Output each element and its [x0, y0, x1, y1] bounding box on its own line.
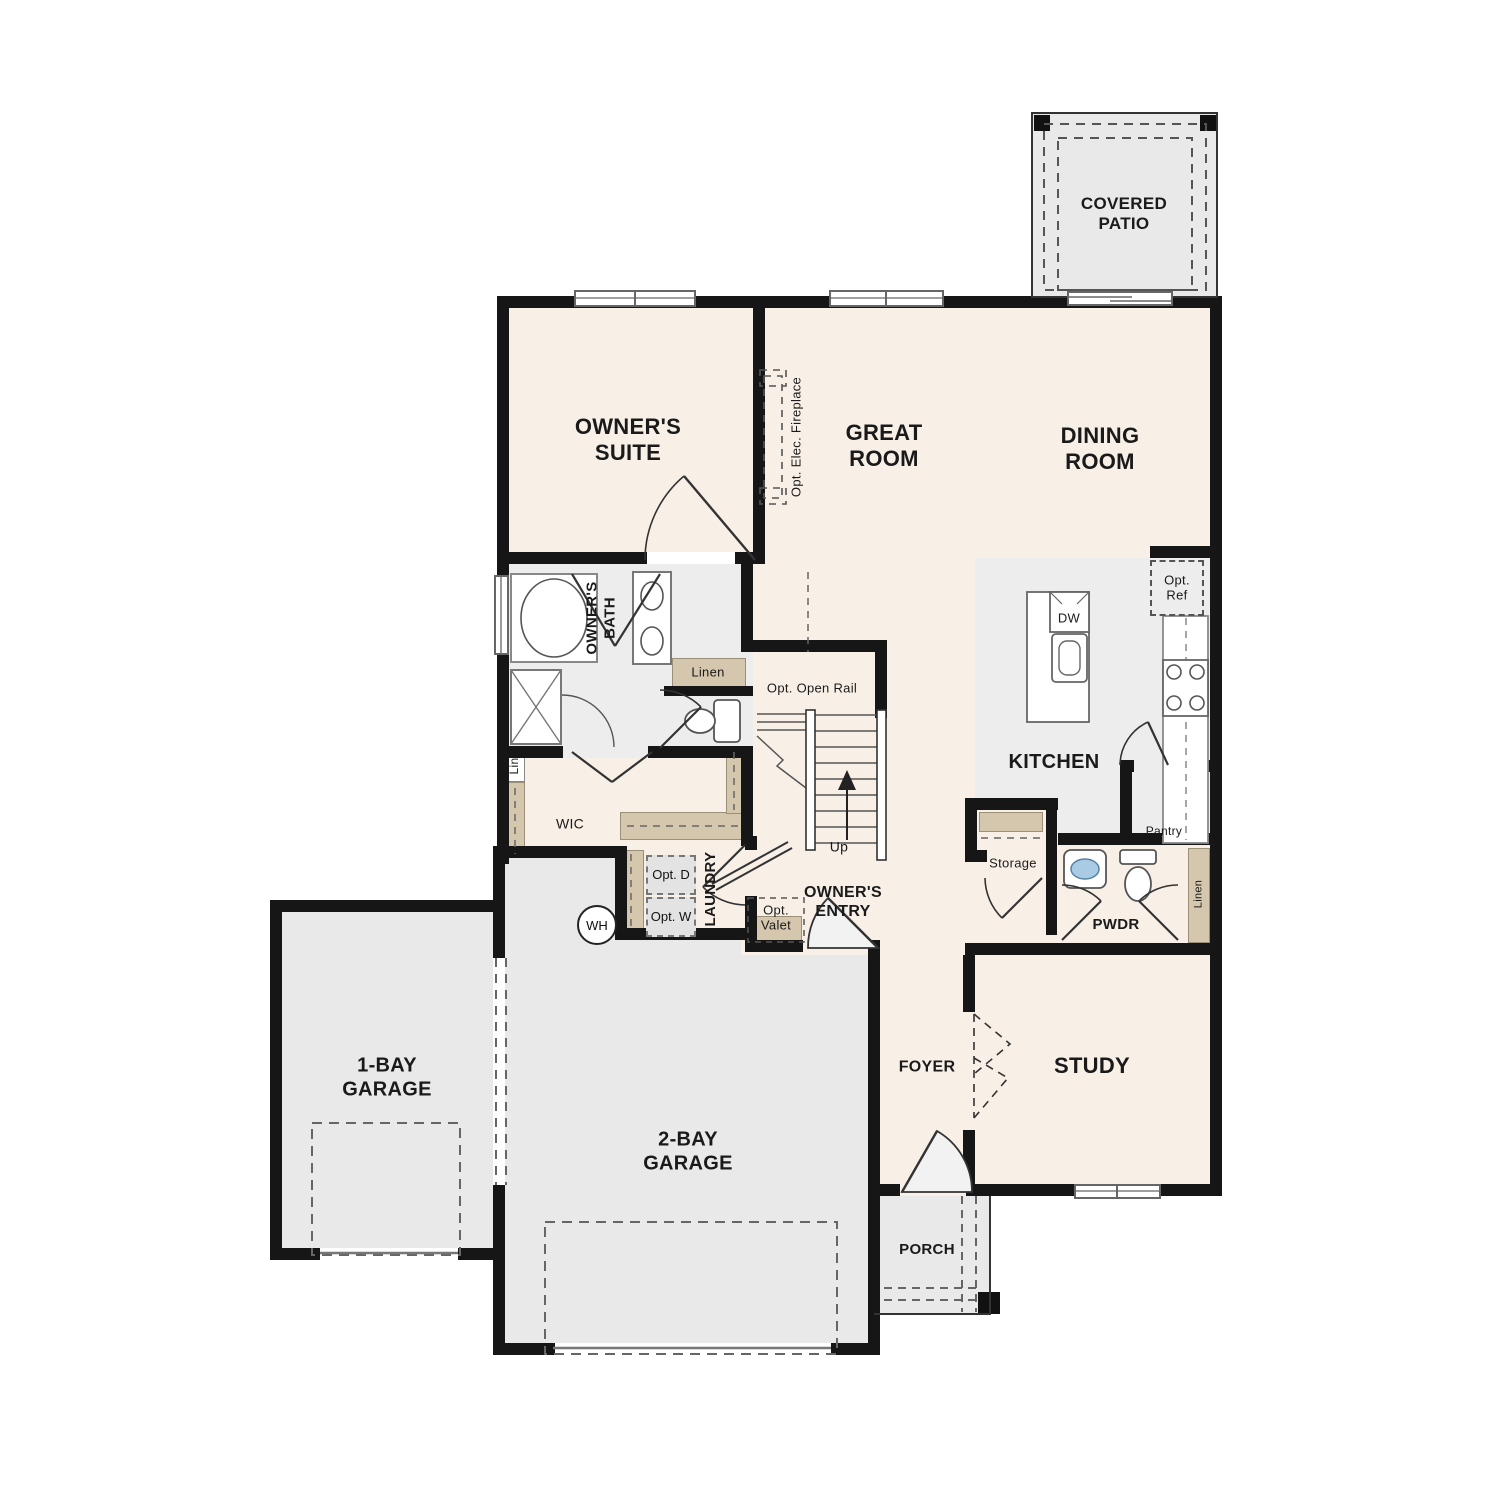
up-label: Up — [819, 839, 859, 856]
kitchen-counter — [1163, 616, 1208, 843]
pwdr-label: PWDR — [1076, 916, 1156, 934]
plan-graphics — [0, 0, 1500, 1500]
dining-room-label: DINING ROOM — [1045, 423, 1155, 475]
garage-1-label: 1-BAY GARAGE — [327, 1054, 447, 1101]
pantry-label: Pantry — [1129, 824, 1199, 838]
shower — [511, 670, 614, 747]
bath-linen-label: Linen — [668, 664, 748, 679]
great-room-label: GREAT ROOM — [829, 420, 939, 472]
foyer-label: FOYER — [882, 1059, 972, 1078]
pwdr-sink — [1064, 850, 1106, 888]
lin-label: Lin — [507, 746, 521, 786]
dashes — [312, 572, 1043, 1354]
covered-patio-label: COVERED PATIO — [1059, 194, 1189, 234]
opt-dryer-label: Opt. D — [652, 868, 690, 882]
front-door — [902, 1131, 972, 1192]
opt-ref-label: Opt. Ref — [1155, 573, 1199, 604]
study-label: STUDY — [1032, 1053, 1152, 1079]
up-arrow — [838, 770, 856, 840]
storage-door — [985, 878, 1042, 918]
opt-washer-label: Opt. W — [651, 910, 691, 924]
dw-label: DW — [1049, 610, 1089, 625]
owners-bath-label: OWNER'S BATH — [583, 568, 618, 668]
water-heater-label: WH — [586, 918, 608, 933]
owners-suite-label: OWNER'S SUITE — [563, 414, 693, 466]
bath-toilet — [685, 700, 740, 742]
suite-door — [645, 476, 755, 560]
stairs — [757, 710, 886, 860]
storage-label: Storage — [978, 855, 1048, 870]
pwdr-toilet — [1120, 850, 1156, 901]
laundry-label: LAUNDRY — [702, 834, 720, 944]
hall-linen-label: Linen — [1193, 864, 1206, 924]
owners-entry-label: OWNER'S ENTRY — [783, 884, 903, 922]
porch-label: PORCH — [882, 1241, 972, 1259]
fireplace-label: Opt. Elec. Fireplace — [788, 347, 803, 527]
kitchen-label: KITCHEN — [954, 751, 1154, 775]
garage2-bay-dash — [545, 1222, 837, 1354]
opt-dryer-box: Opt. D — [646, 855, 696, 895]
fireplace — [760, 370, 786, 504]
open-rail-label: Opt. Open Rail — [762, 680, 862, 695]
garage1-bay-dash — [312, 1123, 460, 1255]
garage-2-label: 2-BAY GARAGE — [618, 1128, 758, 1175]
floor-plan: Opt. D Opt. W WH COVERED PATIO OWNER'S S… — [0, 0, 1500, 1500]
water-heater: WH — [577, 905, 617, 945]
foyer-study-opt-doors — [974, 1014, 1010, 1118]
wic-door — [572, 752, 652, 782]
opt-washer-box: Opt. W — [646, 897, 696, 937]
wic-label: WIC — [540, 816, 600, 833]
